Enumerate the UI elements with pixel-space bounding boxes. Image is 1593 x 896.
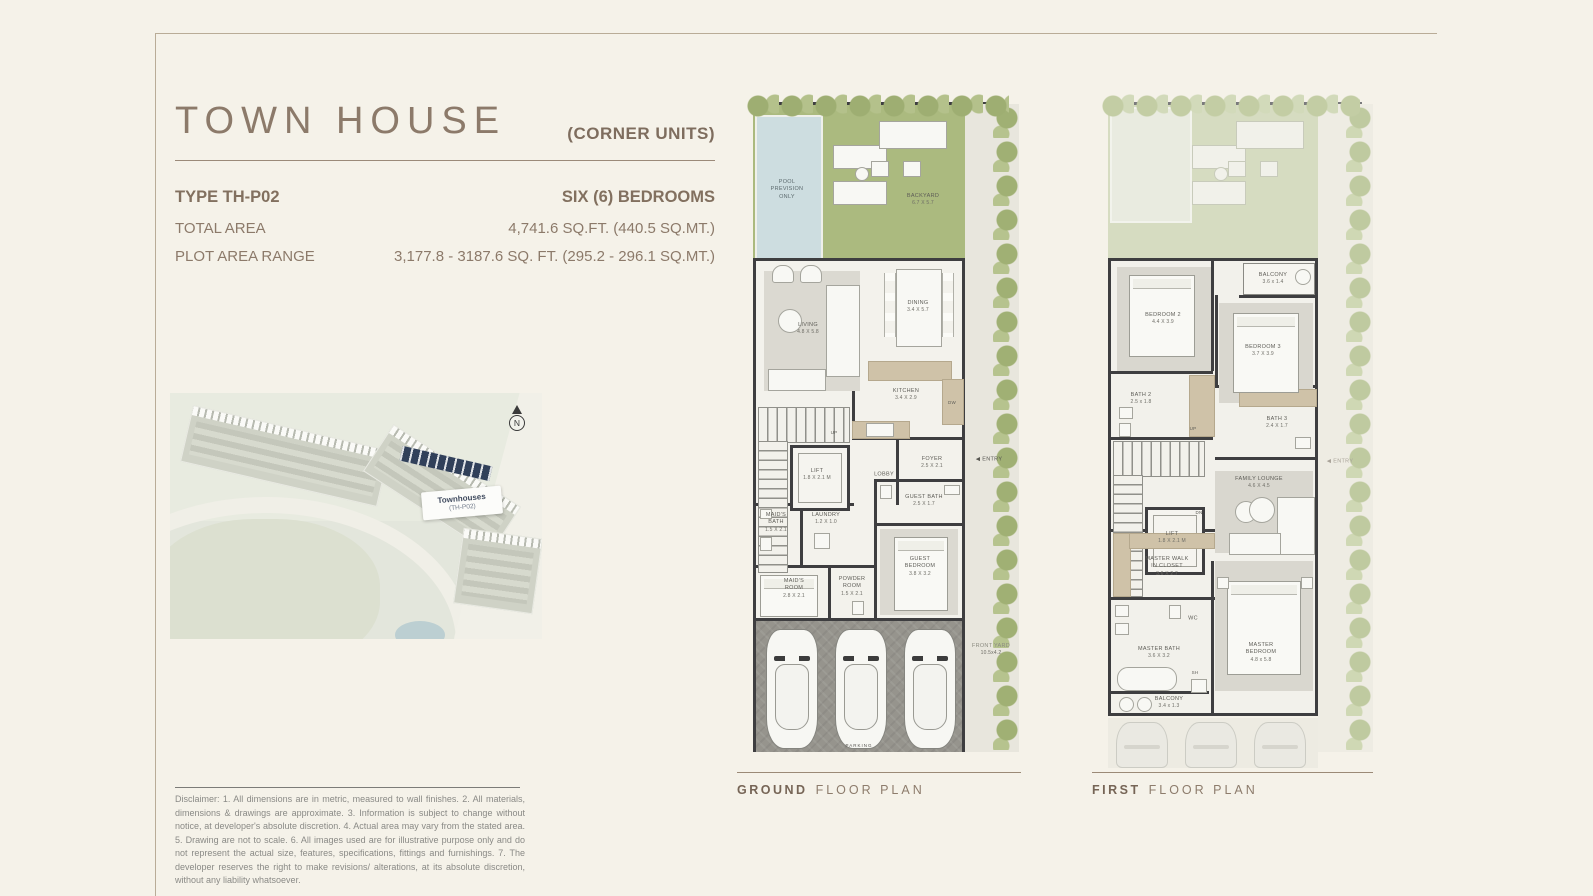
balcony-chair [1295, 269, 1311, 285]
left-rule [155, 33, 156, 896]
dining-chairs [884, 273, 896, 337]
room-label-parking: PARKING [846, 743, 873, 749]
sofa [826, 285, 860, 377]
sink [1119, 407, 1133, 419]
stairs-up-label: UP [831, 430, 838, 436]
sink [1115, 623, 1129, 635]
stairs-up-label: UP [1190, 426, 1197, 432]
room-label-balcony-top: BALCONY 3.6 x 1.4 [1259, 272, 1287, 286]
room-label-backyard: BACKYARD 6.7 X 5.7 [907, 193, 939, 207]
tree-row-top-faded [1100, 90, 1360, 122]
shower [1191, 679, 1207, 693]
lounge-sofa [1229, 533, 1281, 555]
first-caption-rule [1092, 772, 1373, 773]
disclaimer-text: Disclaimer: 1. All dimensions are in met… [175, 793, 525, 888]
plot-area-value: 3,177.8 - 3187.6 SQ. FT. (295.2 - 296.1 … [394, 248, 715, 265]
toilet [852, 601, 864, 615]
car-faded-icon [1185, 722, 1237, 768]
room-label-bedroom3: BEDROOM 3 3.7 X 3.9 [1245, 344, 1281, 358]
outdoor-sofa [879, 121, 947, 149]
sink [1295, 437, 1311, 449]
room-label-balcony-bottom: BALCONY 3.4 x 1.3 [1155, 696, 1183, 710]
car-faded-icon [1254, 722, 1306, 768]
dining-chairs [942, 273, 954, 337]
outdoor-chair-faded [1228, 161, 1246, 177]
bathtub [1117, 667, 1177, 691]
toilet [760, 537, 772, 551]
stairs [758, 441, 788, 573]
outdoor-chair [903, 161, 921, 177]
bush-column-right-faded [1346, 104, 1373, 752]
stairs [1113, 441, 1205, 477]
car-icon [904, 629, 956, 749]
room-label-foyer: FOYER 2.5 X 2.1 [921, 456, 943, 470]
toilet [1119, 423, 1131, 437]
side-table-faded [1214, 167, 1228, 181]
wall [1211, 561, 1214, 713]
room-label-master-bedroom: MASTER BEDROOM 4.8 x 5.8 [1234, 642, 1288, 664]
round-table [1249, 497, 1275, 523]
wall [874, 479, 962, 482]
wall [1111, 597, 1215, 600]
map-units-label-sub: (TH-P02) [449, 503, 476, 513]
unit-type: TYPE TH-P02 [175, 188, 280, 207]
kitchen-island [868, 361, 952, 381]
wall [896, 437, 899, 505]
room-label-bath2: BATH 2 2.5 x 1.8 [1131, 392, 1152, 406]
backyard-area-faded [1108, 105, 1318, 258]
lounge-sofa [1277, 497, 1315, 555]
wall [1215, 457, 1315, 460]
nightstand [1217, 577, 1229, 589]
side-table [855, 167, 869, 181]
north-letter: N [509, 415, 525, 431]
balcony-chair [1119, 697, 1134, 712]
corner-units-note: (CORNER UNITS) [175, 124, 715, 144]
room-label-laundry: LAUNDRY 1.2 X 1.0 [811, 512, 841, 526]
tree-row-top [745, 90, 1009, 122]
washer [814, 533, 830, 549]
room-label-lift: LIFT 1.8 X 2.1 M [1158, 531, 1186, 545]
sink [1115, 605, 1129, 617]
room-label-lift: LIFT 1.8 X 2.1 M [803, 468, 831, 482]
wall [800, 505, 803, 565]
site-location-map: Townhouses (TH-P02) N [170, 393, 542, 639]
entry-arrow-icon: ◀ [976, 456, 981, 463]
wall [1211, 261, 1214, 371]
spec-row-plot-area: PLOT AREA RANGE 3,177.8 - 3187.6 SQ. FT.… [175, 248, 715, 265]
room-label-bedroom2: BEDROOM 2 4.4 X 3.9 [1145, 312, 1181, 326]
car-icon [835, 629, 887, 749]
sink [944, 485, 960, 495]
room-label-powder-room: POWDER ROOM 1.5 X 2.1 [838, 576, 866, 598]
car-icon [766, 629, 818, 749]
bedroom-count: SIX (6) BEDROOMS [562, 188, 715, 207]
stove [866, 423, 894, 437]
ground-caption-rule [737, 772, 1021, 773]
wall [1239, 295, 1315, 298]
stairs-dn-label: DN [1195, 510, 1202, 516]
top-rule [155, 33, 1437, 34]
entry-label-faded: ◀ ENTRY [1327, 458, 1354, 465]
sofa [768, 369, 826, 391]
room-label-front-yard: FRONT YARD 10.5x4.2 [971, 643, 1011, 657]
outdoor-chair [871, 161, 889, 177]
disclaimer-rule [175, 787, 520, 788]
wall [1111, 437, 1213, 440]
room-label-maids-bath: MAID'S BATH 1.5 X 2.1 [761, 512, 791, 534]
room-label-guest-bath: GUEST BATH 2.5 X 1.7 [905, 494, 943, 508]
toilet [1169, 605, 1181, 619]
room-label-living: LIVING 4.8 X 5.8 [797, 322, 819, 336]
parking-area [753, 621, 965, 752]
total-area-label: TOTAL AREA [175, 220, 266, 237]
room-label-wc: WC [1188, 615, 1198, 622]
ground-floor-caption: GROUNDFLOOR PLAN [737, 783, 925, 797]
total-area-value: 4,741.6 SQ.FT. (440.5 SQ.MT.) [508, 220, 715, 237]
armchair [772, 265, 794, 283]
first-house-body: BEDROOM 2 4.4 X 3.9 BALCONY 3.6 x 1.4 BE… [1108, 258, 1318, 716]
title-underline [175, 160, 715, 161]
entry-label: ◀ ENTRY [976, 456, 1003, 463]
room-label-dining: DINING 3.4 X 5.7 [907, 300, 929, 314]
plot-area-label: PLOT AREA RANGE [175, 248, 315, 265]
toilet [880, 485, 892, 499]
entry-arrow-icon: ◀ [1327, 458, 1332, 465]
wall [874, 479, 877, 618]
ground-house-body: LIVING 4.8 X 5.8 DINING 3.4 X 5.7 KITCHE… [753, 258, 965, 621]
nightstand [1301, 577, 1313, 589]
lounge-chair-faded [1192, 181, 1246, 205]
armchair [800, 265, 822, 283]
wall [828, 567, 831, 618]
room-label-pool: POOL PREVISION ONLY [764, 179, 810, 201]
wall [1215, 295, 1218, 385]
north-compass-icon: N [506, 405, 528, 431]
outdoor-sofa-faded [1236, 121, 1304, 149]
north-arrow-icon [512, 405, 522, 414]
room-label-guest-bedroom: GUEST BEDROOM 3.8 X 3.2 [900, 556, 940, 578]
wall [874, 523, 962, 526]
room-label-lobby: LOBBY [874, 471, 894, 478]
room-label-sh: SH [1192, 670, 1199, 676]
parking-area-faded [1108, 718, 1318, 768]
room-label-dw: DW [948, 400, 956, 406]
outdoor-chair-faded [1260, 161, 1278, 177]
balcony-chair [1137, 697, 1152, 712]
spec-row-type: TYPE TH-P02 SIX (6) BEDROOMS [175, 188, 715, 207]
first-floor-caption: FIRSTFLOOR PLAN [1092, 783, 1258, 797]
room-label-master-closet: MASTER WALK IN CLOSET 3.6 X 2.7 [1144, 556, 1190, 578]
lounge-chair [833, 181, 887, 205]
pool-area-faded [1110, 107, 1192, 223]
first-floor-plan: BEDROOM 2 4.4 X 3.9 BALCONY 3.6 x 1.4 BE… [1092, 100, 1373, 768]
townhouse-row-segment [453, 528, 542, 614]
car-faded-icon [1116, 722, 1168, 768]
room-label-kitchen: KITCHEN 3.4 X 2.9 [893, 388, 919, 402]
spec-row-total-area: TOTAL AREA 4,741.6 SQ.FT. (440.5 SQ.MT.) [175, 220, 715, 237]
ground-floor-plan: POOL PREVISION ONLY BACKYARD 6.7 X 5.7 L… [737, 100, 1021, 768]
room-label-family-lounge: FAMILY LOUNGE 4.6 X 4.5 [1235, 476, 1283, 490]
room-label-bath3: BATH 3 2.4 X 1.7 [1266, 416, 1288, 430]
stairs [758, 407, 850, 443]
wall [1111, 371, 1213, 374]
room-label-maids-room: MAID'S ROOM 2.8 X 2.1 [774, 578, 814, 600]
room-label-master-bath: MASTER BATH 3.6 X 3.2 [1138, 646, 1180, 660]
